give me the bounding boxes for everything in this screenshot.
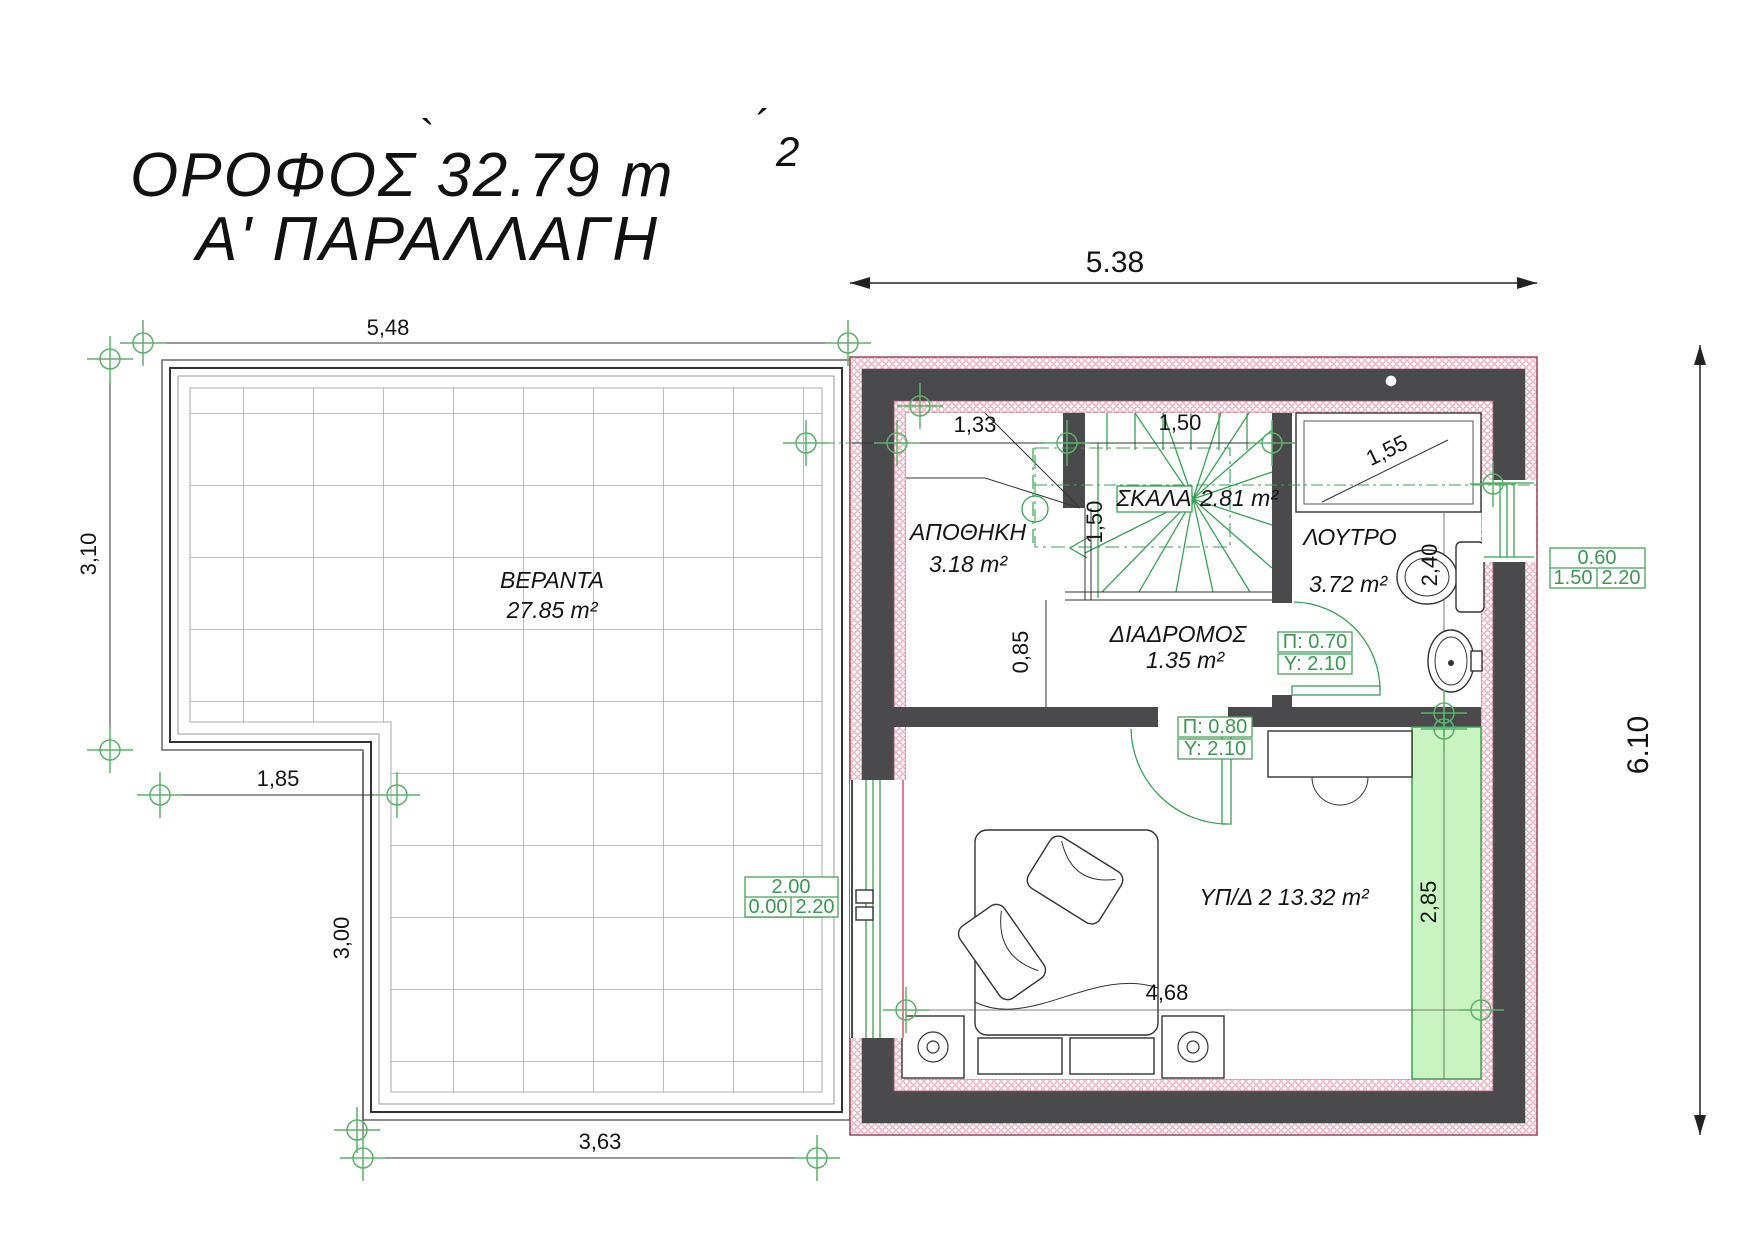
wall-hall-bedroom-left <box>880 707 1158 727</box>
nightstand-icon <box>1162 1016 1224 1078</box>
veranda-area: 27.85 m² <box>506 597 599 623</box>
bed-foot-drawer <box>1070 1038 1154 1074</box>
dim-veranda-bottom: 3,63 <box>579 1129 622 1154</box>
right-window-height: 2.20 <box>1602 567 1641 589</box>
hallway-area: 1.35 m² <box>1146 647 1225 673</box>
page-title-superscript: 2 <box>775 128 799 175</box>
storage-label: ΑΠΟΘΗΚΗ <box>908 519 1027 545</box>
page-subtitle: Α' ΠΑΡΑΛΛΑΓΗ <box>192 205 659 274</box>
balcony-door-height: 2.20 <box>796 896 835 918</box>
balcony-door-sill: 0.00 <box>749 896 788 918</box>
dim-veranda-top: 5,48 <box>367 315 410 340</box>
dim-building-height: 6.10 <box>1622 716 1655 774</box>
stair-area: 2.81 m² <box>1199 485 1279 511</box>
dim-step-depth: 3,00 <box>329 917 354 960</box>
floor-plan-page: ΟΡΟΦΟΣ 32.79 m 2 ` ´ Α' ΠΑΡΑΛΛΑΓΗ ΒΕΡΑΝΤ… <box>0 0 1755 1240</box>
veranda-label: ΒΕΡΑΝΤΑ <box>500 567 604 593</box>
shower-head-icon <box>1385 375 1397 387</box>
desk-icon <box>1268 731 1412 777</box>
window-handle-icon <box>856 890 873 903</box>
bedroom-door-width: Π: 0.80 <box>1183 716 1247 738</box>
window-handle-icon <box>856 907 873 920</box>
arrow-right-icon <box>1517 277 1537 289</box>
page-title: ΟΡΟΦΟΣ 32.79 m <box>130 141 674 210</box>
dim-hall: 0,85 <box>1008 631 1033 674</box>
storage-area: 3.18 m² <box>929 551 1008 577</box>
right-window-opening <box>1482 480 1536 562</box>
dim-bedroom-width: 4,68 <box>1146 980 1189 1005</box>
dim-stair-top: 1,50 <box>1159 410 1202 435</box>
bathroom-door-height: Υ: 2.10 <box>1284 653 1346 675</box>
dim-storage-top: 1,33 <box>954 412 997 437</box>
balcony-door-width: 2.00 <box>772 876 811 898</box>
hallway-label: ΔΙΑΔΡΟΜΟΣ <box>1109 621 1248 647</box>
dim-veranda-left: 3,10 <box>76 533 101 576</box>
dim-step-width: 1,85 <box>257 766 300 791</box>
bathroom-door-width: Π: 0.70 <box>1283 631 1347 653</box>
arrow-left-icon <box>850 277 870 289</box>
title-grave-accent: ` <box>420 111 435 160</box>
dim-bath-depth: 2,40 <box>1417 544 1442 587</box>
floor-plan-drawing: ΟΡΟΦΟΣ 32.79 m 2 ` ´ Α' ΠΑΡΑΛΛΑΓΗ ΒΕΡΑΝΤ… <box>0 0 1755 1240</box>
veranda-tile-grid <box>190 388 822 1092</box>
toilet-tank-icon <box>1456 542 1484 612</box>
bedroom-label: ΥΠ/Δ 2 13.32 m² <box>1199 884 1370 910</box>
bathroom-door-leaf <box>1292 686 1380 695</box>
nightstand-icon <box>902 1016 964 1078</box>
arrow-up-icon <box>1694 345 1706 365</box>
dim-closet: 2,85 <box>1416 881 1441 924</box>
dim-stair-side: 1,50 <box>1082 501 1107 544</box>
bed-foot-drawer <box>978 1038 1062 1074</box>
bathroom-label: ΛΟΥΤΡΟ <box>1301 524 1397 550</box>
right-window-sill: 1.50 <box>1554 567 1593 589</box>
title-acute-accent: ´ <box>756 101 771 150</box>
veranda: ΒΕΡΑΝΤΑ 27.85 m² <box>162 360 850 1120</box>
bathroom-area: 3.72 m² <box>1309 571 1388 597</box>
dim-building-width: 5.38 <box>1086 246 1144 279</box>
arrow-down-icon <box>1694 1115 1706 1135</box>
bedroom-door-height: Υ: 2.10 <box>1184 738 1246 760</box>
right-window-width: 0.60 <box>1578 547 1617 569</box>
stair-label: ΣΚΑΛΑ <box>1115 485 1191 511</box>
sink-faucet-icon <box>1471 651 1482 671</box>
title-block: ΟΡΟΦΟΣ 32.79 m 2 ` ´ Α' ΠΑΡΑΛΛΑΓΗ <box>130 101 799 274</box>
sink-drain <box>1448 660 1454 666</box>
